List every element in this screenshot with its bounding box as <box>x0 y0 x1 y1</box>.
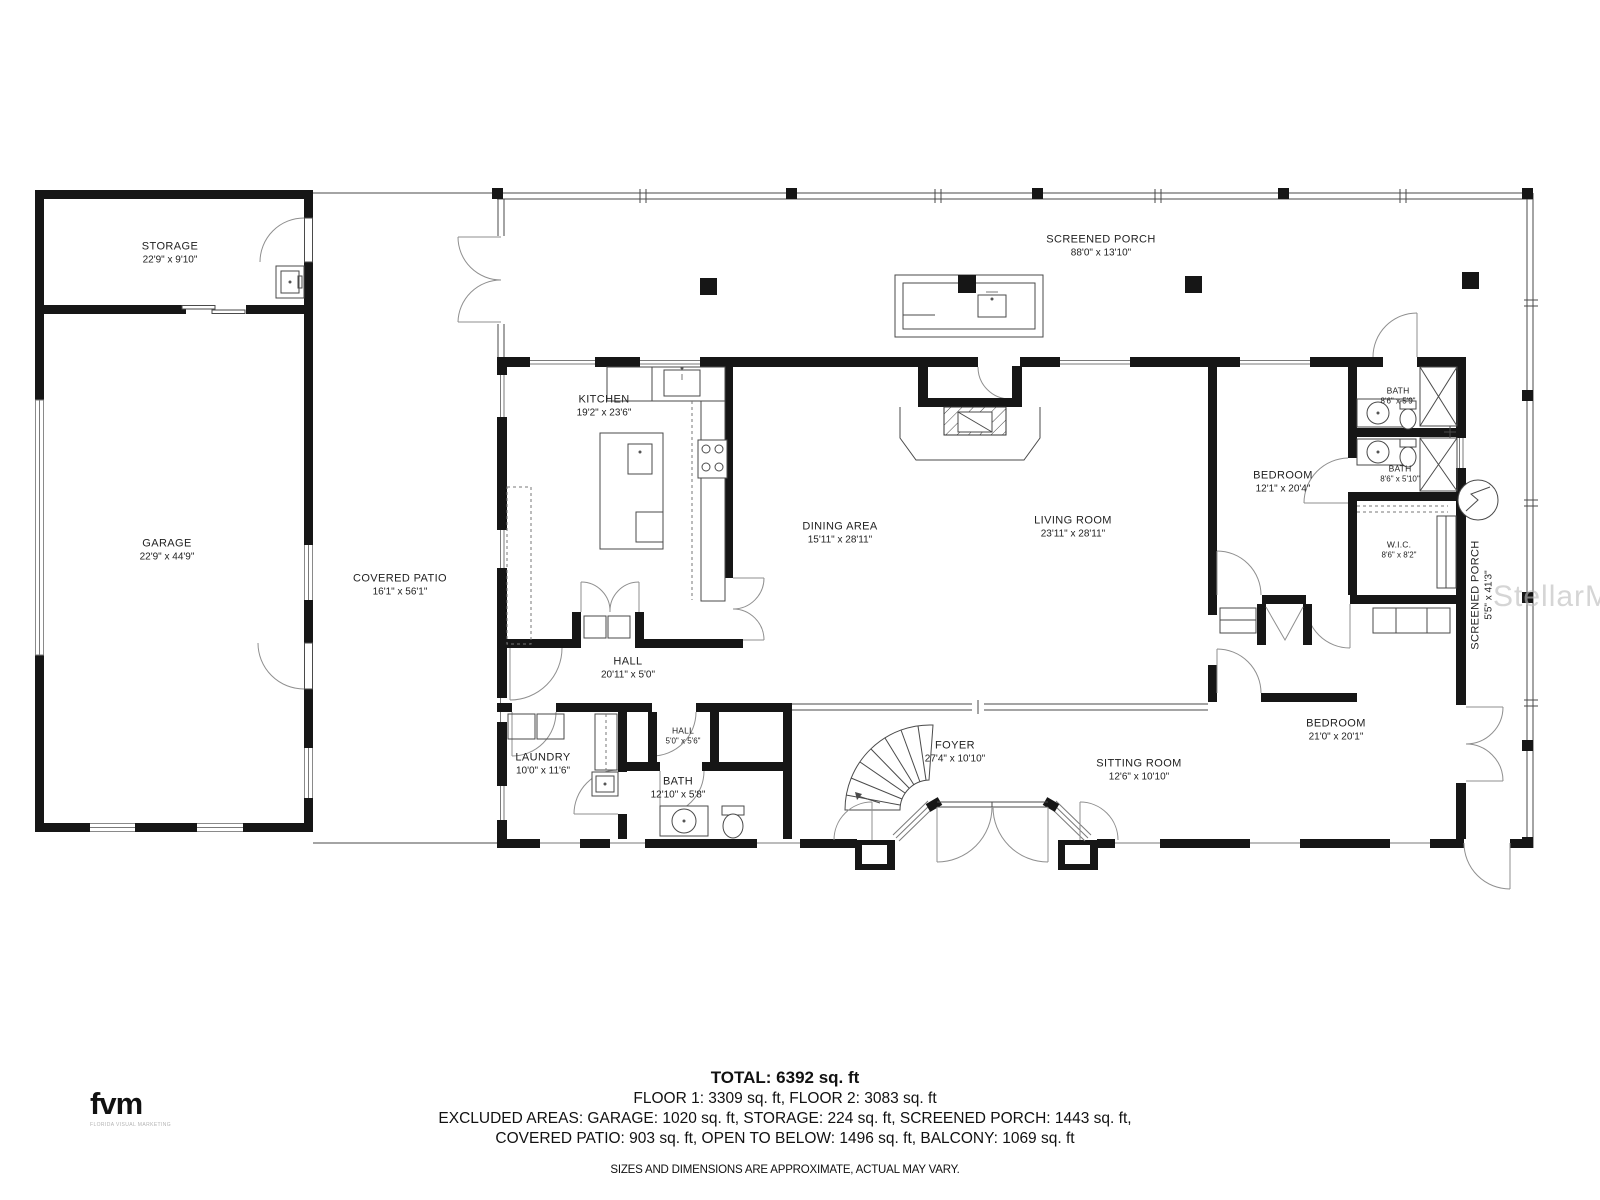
excluded-areas-line1: EXCLUDED AREAS: GARAGE: 1020 sq. ft, STO… <box>0 1110 1570 1128</box>
stove <box>698 440 727 478</box>
room-label-kitchen: KITCHEN 19'2" x 23'6" <box>577 392 632 419</box>
room-label-dining: DINING AREA 15'11" x 28'11" <box>802 519 877 546</box>
room-label-hall: HALL 20'11" x 5'0" <box>601 654 655 681</box>
total-area: TOTAL: 6392 sq. ft <box>0 1068 1570 1088</box>
room-label-storage: STORAGE 22'9" x 9'10" <box>142 239 198 266</box>
floor-plan-drawing <box>0 0 1600 1200</box>
outdoor-kitchen <box>895 275 1043 337</box>
room-label-screened-porch-right: SCREENED PORCH 5'5" x 41'3" <box>1468 540 1495 650</box>
room-label-wic: W.I.C. 8'6" x 8'2" <box>1382 539 1417 560</box>
room-label-sitting: SITTING ROOM 12'6" x 10'10" <box>1096 756 1181 783</box>
stellar-mls-watermark: StellarMLS <box>1493 580 1600 614</box>
excluded-areas-line2: COVERED PATIO: 903 sq. ft, OPEN TO BELOW… <box>0 1130 1570 1148</box>
area-summary: TOTAL: 6392 sq. ft FLOOR 1: 3309 sq. ft,… <box>0 1068 1570 1176</box>
room-label-bath2: BATH 8'6" x 5'10" <box>1380 463 1419 484</box>
floor-plan-canvas: STORAGE 22'9" x 9'10" GARAGE 22'9" x 44'… <box>0 0 1600 1200</box>
staircase <box>845 725 933 810</box>
room-label-hall2: HALL 5'0" x 5'6" <box>666 725 701 746</box>
room-label-garage: GARAGE 22'9" x 44'9" <box>140 536 195 563</box>
room-label-bath3: BATH 12'10" x 5'8" <box>651 774 706 801</box>
utility-sink <box>276 266 304 298</box>
room-label-covered-patio: COVERED PATIO 16'1" x 56'1" <box>353 571 447 598</box>
disclaimer: SIZES AND DIMENSIONS ARE APPROXIMATE, AC… <box>0 1164 1570 1176</box>
floor-areas: FLOOR 1: 3309 sq. ft, FLOOR 2: 3083 sq. … <box>0 1090 1570 1108</box>
room-label-screened-porch-top: SCREENED PORCH 88'0" x 13'10" <box>1046 232 1156 259</box>
room-label-bedroom1: BEDROOM 12'1" x 20'4" <box>1253 468 1313 495</box>
bedroom2-closets <box>1220 604 1450 645</box>
covered-patio-outline <box>313 193 503 843</box>
storage-garage-block <box>35 190 313 832</box>
kitchen-island <box>600 433 663 549</box>
room-label-bath1: BATH 8'6" x 5'9" <box>1381 385 1416 406</box>
room-label-bedroom2: BEDROOM 21'0" x 20'1" <box>1306 716 1366 743</box>
room-label-living: LIVING ROOM 23'11" x 28'11" <box>1034 513 1112 540</box>
entry-bay <box>834 801 1118 870</box>
room-label-foyer: FOYER 27'4" x 10'10" <box>925 738 985 765</box>
fireplace <box>900 366 1040 460</box>
room-label-laundry: LAUNDRY 10'0" x 11'6" <box>515 750 570 777</box>
